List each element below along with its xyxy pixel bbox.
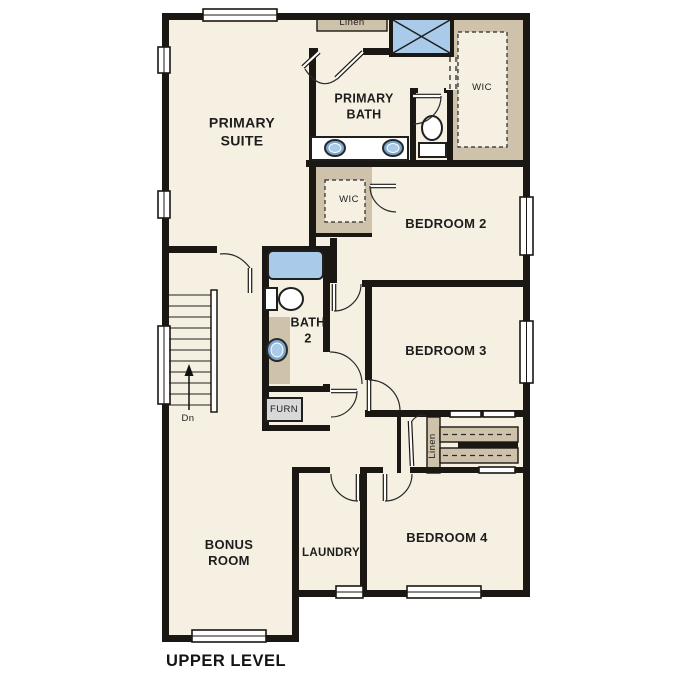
toilet-icon [265, 288, 303, 310]
label-furnace: FURN [270, 404, 298, 416]
double-vanity [311, 137, 408, 160]
label-linen-top: Linen [339, 17, 364, 29]
floor-plan: PRIMARY SUITE PRIMARY BATH Linen WIC WIC… [0, 0, 687, 687]
opening-primary-wic [446, 57, 457, 90]
label-bedroom4: BEDROOM 4 [406, 530, 487, 546]
label-stairs-down: Dn [182, 413, 195, 425]
bathtub-icon [268, 251, 323, 279]
label-primary-wic: WIC [472, 82, 492, 94]
label-bedroom2-wic: WIC [339, 194, 359, 206]
label-bonus-room: BONUS ROOM [205, 537, 253, 570]
sliding-door-bedroom3-closet-right [483, 411, 515, 417]
plan-title: UPPER LEVEL [166, 652, 286, 671]
sliding-door-bedroom4-closet [479, 467, 515, 473]
stair-railing [211, 290, 217, 412]
label-linen-hall: Linen [427, 433, 439, 458]
label-laundry: LAUNDRY [302, 546, 360, 560]
sink-icon [267, 339, 287, 361]
label-primary-bath: PRIMARY BATH [334, 91, 393, 122]
label-primary-suite: PRIMARY SUITE [209, 115, 275, 150]
label-bedroom3: BEDROOM 3 [405, 343, 486, 359]
label-bath2: BATH 2 [291, 315, 326, 346]
label-bedroom2: BEDROOM 2 [405, 216, 486, 232]
shower-icon [391, 18, 452, 55]
sliding-door-bedroom3-closet-left [450, 411, 481, 417]
